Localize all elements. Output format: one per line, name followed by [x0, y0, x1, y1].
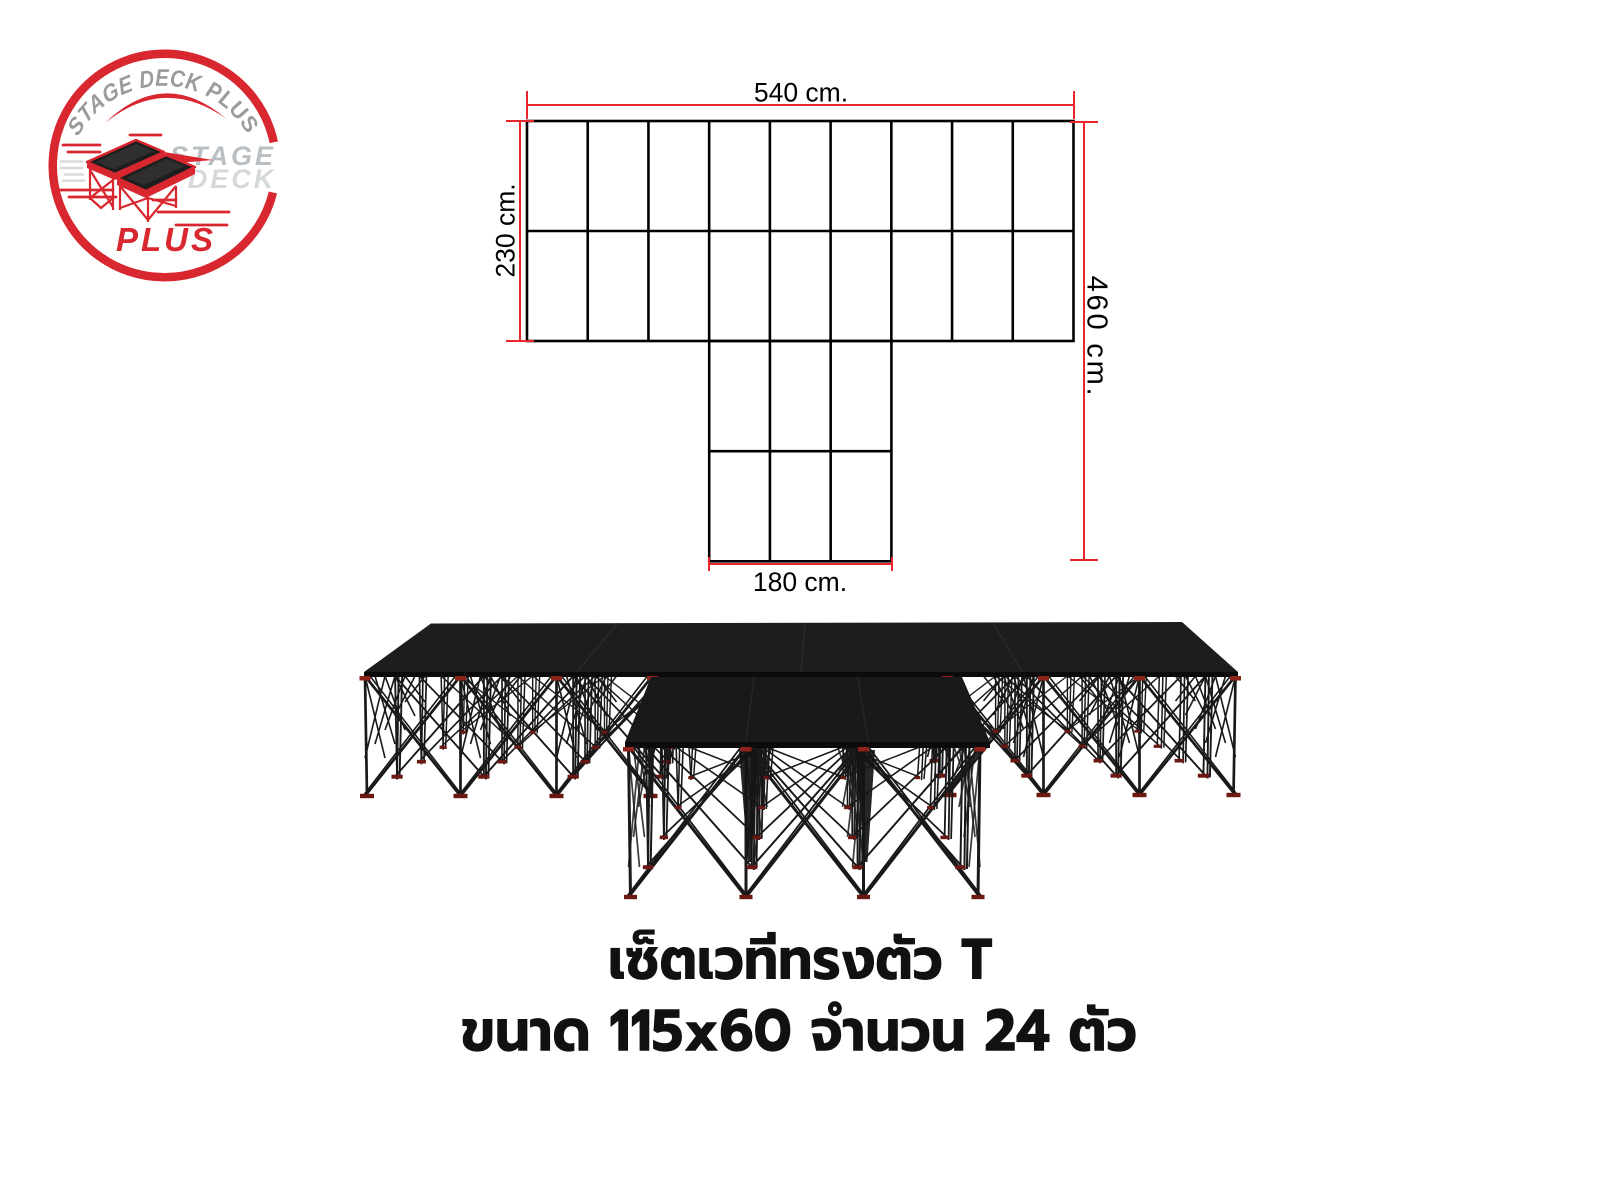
svg-text:460 cm.: 460 cm. — [1081, 276, 1113, 399]
svg-text:DECK: DECK — [188, 164, 277, 194]
svg-text:540 cm.: 540 cm. — [754, 78, 848, 108]
svg-text:180 cm.: 180 cm. — [753, 567, 847, 597]
svg-text:230 cm.: 230 cm. — [491, 183, 521, 277]
svg-text:PLUS: PLUS — [116, 221, 216, 258]
